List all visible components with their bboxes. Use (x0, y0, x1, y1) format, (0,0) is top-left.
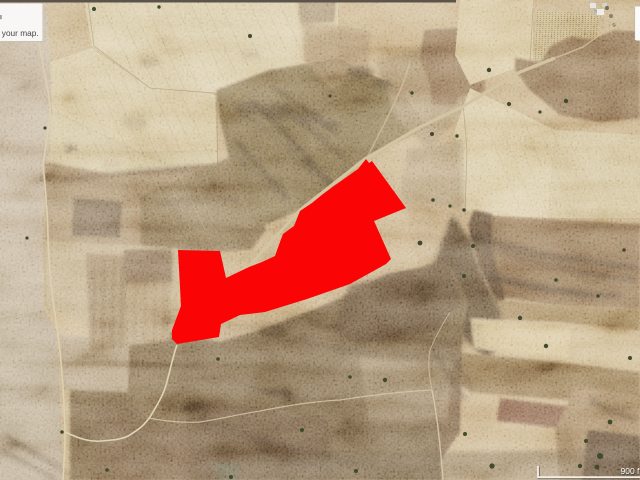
svg-text:900 ft: 900 ft (621, 466, 640, 476)
svg-text:your map.: your map. (2, 28, 39, 38)
